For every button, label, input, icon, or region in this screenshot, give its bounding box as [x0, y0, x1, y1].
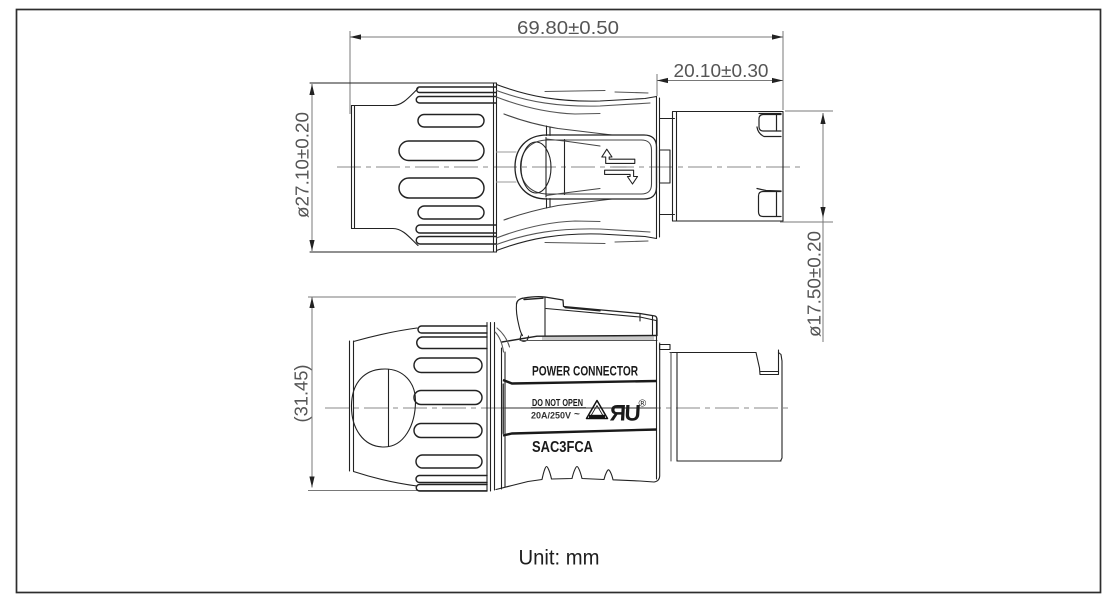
- svg-text:ø17.50±0.20: ø17.50±0.20: [804, 231, 825, 337]
- svg-text:SAC3FCA: SAC3FCA: [532, 439, 593, 456]
- svg-text:ЯU: ЯU: [609, 401, 640, 426]
- svg-text:20.10±0.30: 20.10±0.30: [674, 60, 769, 81]
- svg-text:(31.45): (31.45): [291, 365, 312, 423]
- svg-text:20A/250V: 20A/250V: [531, 411, 571, 421]
- svg-text:ø27.10±0.20: ø27.10±0.20: [292, 112, 313, 218]
- svg-text:POWER CONNECTOR: POWER CONNECTOR: [532, 363, 638, 379]
- svg-text:®: ®: [639, 398, 647, 410]
- svg-text:~: ~: [574, 409, 580, 420]
- svg-text:69.80±0.50: 69.80±0.50: [517, 17, 619, 38]
- svg-text:Unit: mm: Unit: mm: [519, 547, 600, 570]
